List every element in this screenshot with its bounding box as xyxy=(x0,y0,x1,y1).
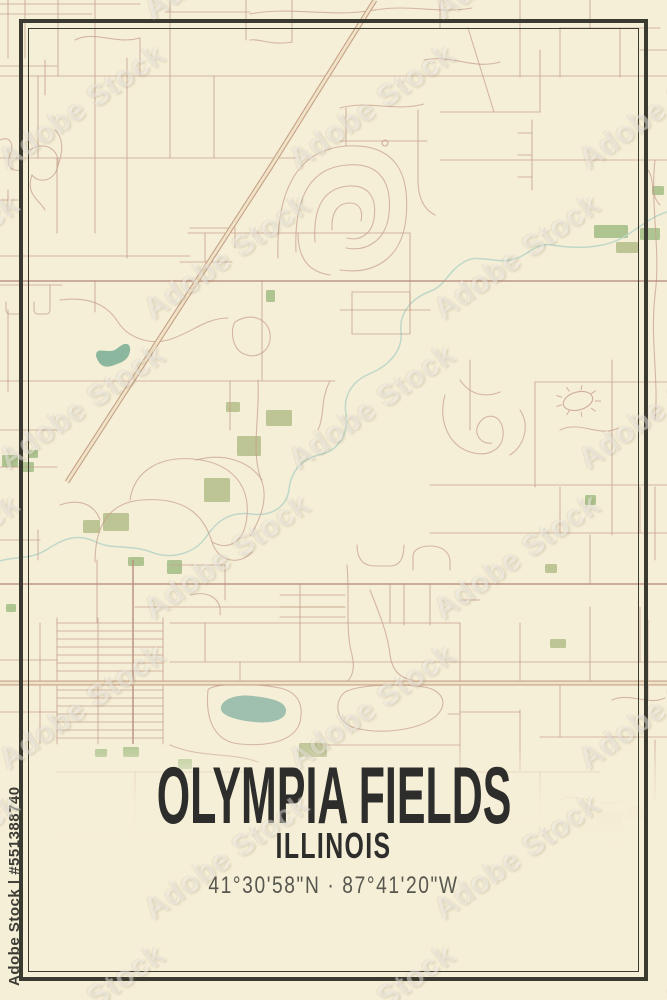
poster: OLYMPIA FIELDS ILLINOIS 41°30'58"N · 87°… xyxy=(0,0,667,1000)
map-svg xyxy=(0,0,667,1000)
